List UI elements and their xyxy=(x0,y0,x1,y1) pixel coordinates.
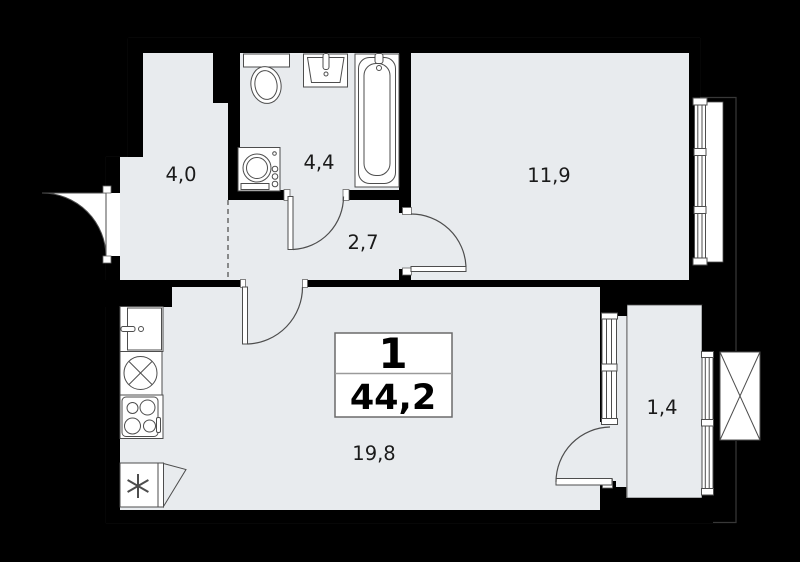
kitchen-sink xyxy=(120,307,163,352)
room-label-balcony: 1,4 xyxy=(646,396,677,419)
room-label-bedroom: 11,9 xyxy=(527,164,570,187)
info-badge: 1 44,2 xyxy=(335,329,452,418)
room-label-living-kitchen: 19,8 xyxy=(352,442,395,465)
badge-rooms-count: 1 xyxy=(378,329,407,378)
ac-unit-spot xyxy=(720,352,760,440)
bathroom-door-leaf xyxy=(288,197,293,250)
bathroom-sink xyxy=(304,54,348,88)
bedroom-door-leaf xyxy=(411,267,466,272)
washing-machine xyxy=(238,148,280,192)
balcony-door-leaf xyxy=(556,479,612,486)
bathtub xyxy=(355,54,399,188)
living-room-door-leaf xyxy=(243,287,248,344)
room-label-bathroom: 4,4 xyxy=(303,151,334,174)
balcony-window xyxy=(702,352,714,496)
stove xyxy=(120,395,163,439)
bedroom-window xyxy=(693,98,723,265)
round-sink-hob xyxy=(120,352,162,396)
floor-plan-drawing: 4,0 4,4 2,7 11,9 19,8 1,4 1 44,2 xyxy=(0,0,800,562)
floor-plan: 4,0 4,4 2,7 11,9 19,8 1,4 1 44,2 xyxy=(0,0,800,562)
room-label-hallway: 4,0 xyxy=(165,163,196,186)
badge-total-area: 44,2 xyxy=(350,378,436,418)
room-label-hall: 2,7 xyxy=(347,231,378,254)
window-sill xyxy=(706,102,724,262)
